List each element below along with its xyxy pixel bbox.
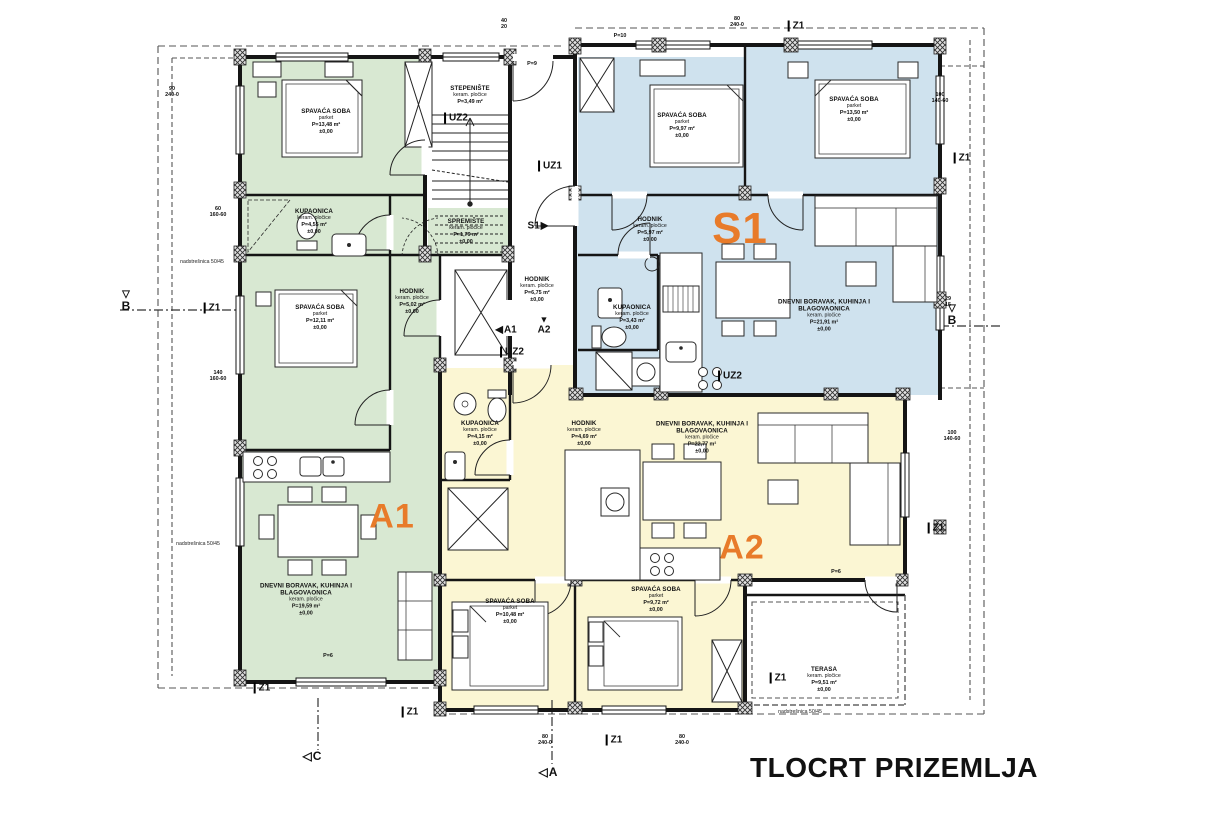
marker-text: Z1: [775, 673, 787, 684]
room-floor: keram. pločice: [450, 93, 490, 99]
plan-marker: Z1: [606, 735, 623, 746]
room-area: P=10,48 m²: [485, 612, 534, 618]
dim-line2: 160-60: [210, 212, 227, 218]
room-area: P=3,49 m²: [450, 99, 490, 105]
dim-line2: 240-0: [730, 22, 744, 28]
plan-marker: ▼ A2: [538, 317, 551, 336]
dimension-tag: 80 240-0: [675, 734, 689, 746]
marker-glyph-icon: ◁: [539, 766, 548, 778]
marker-text: Z1: [209, 303, 221, 314]
unit-badge: S1: [712, 204, 768, 254]
room-name: DNEVNI BORAVAK, KUHINJA I BLAGOVAONICA: [632, 422, 772, 436]
room-level: ±0,00: [631, 607, 680, 613]
marker-text: C: [313, 749, 322, 763]
room-area: P=21,91 m²: [754, 319, 894, 325]
drawing-title: TLOCRT PRIZEMLJA: [750, 752, 1038, 784]
dim-line1: P=6: [831, 569, 841, 575]
overhang-note: nadstrešnica 50/45: [778, 709, 822, 715]
room-area: P=9,97 m²: [657, 126, 706, 132]
room-label: STEPENIŠTE keram. pločice P=3,49 m²: [450, 86, 490, 106]
dim-line1: P=6: [323, 653, 333, 659]
dim-line1: 100: [935, 92, 944, 98]
dim-line1: 80: [734, 16, 740, 22]
marker-glyph-icon: ◁: [303, 750, 312, 762]
room-label: SPAVAĆA SOBA parket P=13,50 m² ±0,00: [829, 97, 878, 123]
floor-plan-canvas: SPAVAĆA SOBA parket P=13,48 m² ±0,00 KUP…: [0, 0, 1211, 832]
room-label: KUPAONICA keram. pločice P=4,55 m² ±0,00: [295, 209, 333, 235]
room-level: ±0,00: [395, 309, 428, 315]
room-label: SPAVAĆA SOBA parket P=10,48 m² ±0,00: [485, 599, 534, 625]
marker-text: S1: [528, 221, 540, 232]
dimension-tag: 90 240-0: [165, 86, 179, 98]
plan-marker: ◁ C: [303, 749, 322, 763]
room-area: P=4,55 m²: [295, 222, 333, 228]
dimension-tag: P=9: [527, 61, 537, 67]
dimension-tag: 140 160-60: [210, 370, 227, 382]
floor-plan-drawing: [0, 0, 1211, 832]
dim-line1: P=9: [527, 61, 537, 67]
room-level: ±0,00: [295, 325, 344, 331]
marker-text: B: [122, 300, 131, 312]
plan-marker: Z1: [954, 153, 971, 164]
room-label: HODNIK keram. pločice P=5,97 m² ±0,00: [633, 217, 666, 243]
dim-line1: 100: [947, 430, 956, 436]
dimension-tag: 80 240-0: [730, 16, 744, 28]
plan-marker: UZ2: [444, 113, 468, 124]
room-label: DNEVNI BORAVAK, KUHINJA I BLAGOVAONICA k…: [754, 300, 894, 333]
room-level: ±0,00: [807, 687, 840, 693]
dim-line1: 140: [213, 370, 222, 376]
plan-marker: ▽ B: [948, 306, 957, 326]
plan-marker: ◁ A: [539, 765, 558, 779]
room-area: P=4,69 m²: [567, 434, 600, 440]
room-name: DNEVNI BORAVAK, KUHINJA I BLAGOVAONICA: [754, 300, 894, 314]
marker-text: Z1: [793, 21, 805, 32]
room-level: ±0,00: [448, 239, 485, 245]
room-floor: keram. pločice: [461, 428, 499, 434]
room-area: P=3,43 m²: [613, 318, 651, 324]
room-area: P=1,79 m²: [448, 232, 485, 238]
room-level: ±0,00: [613, 325, 651, 331]
dimension-tag: 80 240-0: [538, 734, 552, 746]
room-label: KUPAONICA keram. pločice P=4,15 m² ±0,00: [461, 421, 499, 447]
room-floor: keram. pločice: [613, 312, 651, 318]
room-level: ±0,00: [567, 441, 600, 447]
room-level: ±0,00: [485, 619, 534, 625]
marker-text: Z1: [611, 735, 623, 746]
room-level: ±0,00: [520, 297, 553, 303]
room-label: SPAVAĆA SOBA parket P=9,72 m² ±0,00: [631, 587, 680, 613]
room-label: SPAVAĆA SOBA parket P=9,97 m² ±0,00: [657, 113, 706, 139]
marker-glyph-icon: ▶: [541, 221, 549, 231]
plan-marker: Z1: [254, 683, 271, 694]
marker-text: Z1: [407, 707, 419, 718]
dim-line2: 20: [501, 24, 507, 30]
dimension-tag: P=10: [614, 33, 627, 39]
kitchen-a1: [243, 452, 390, 482]
dim-line1: P=10: [614, 33, 627, 39]
dimension-tag: 100 140-60: [932, 92, 949, 104]
marker-text: A: [549, 765, 558, 779]
marker-glyph-icon: ▼: [540, 316, 549, 325]
plan-marker: UZ2: [718, 371, 742, 382]
marker-text: A1: [504, 325, 517, 336]
sofa: [398, 572, 432, 660]
room-label: HODNIK keram. pločice P=6,75 m² ±0,00: [520, 277, 553, 303]
room-floor: keram. pločice: [448, 226, 485, 232]
plan-marker: ◀ A1: [495, 325, 517, 336]
room-label: SPAVAĆA SOBA parket P=13,48 m² ±0,00: [301, 109, 350, 135]
room-label: HODNIK keram. pločice P=5,02 m² ±0,00: [395, 289, 428, 315]
dimension-tag: P=6: [323, 653, 333, 659]
room-floor: keram. pločice: [295, 216, 333, 222]
room-area: P=9,72 m²: [631, 600, 680, 606]
overhang-note: nadstrešnica 50/45: [176, 541, 220, 547]
room-level: ±0,00: [241, 610, 371, 616]
marker-glyph-icon: ◀: [495, 325, 503, 335]
dimension-tag: 100 140-60: [944, 430, 961, 442]
dim-line1: 60: [215, 206, 221, 212]
dim-line2: 160-60: [210, 376, 227, 382]
marker-text: A2: [538, 325, 551, 336]
marker-text: Z1: [259, 683, 271, 694]
bed: [588, 617, 682, 690]
room-area: P=4,15 m²: [461, 434, 499, 440]
room-label: DNEVNI BORAVAK, KUHINJA I BLAGOVAONICA k…: [632, 422, 772, 455]
room-floor: keram. pločice: [633, 224, 666, 230]
dim-line2: 140-60: [932, 98, 949, 104]
room-area: P=19,59 m²: [241, 603, 371, 609]
room-label: DNEVNI BORAVAK, KUHINJA I BLAGOVAONICA k…: [241, 584, 371, 617]
plan-marker: Z1: [204, 303, 221, 314]
room-level: ±0,00: [829, 117, 878, 123]
room-level: ±0,00: [633, 237, 666, 243]
dim-line1: 90: [169, 86, 175, 92]
dim-line2: 240-0: [538, 740, 552, 746]
marker-text: UZ2: [723, 371, 742, 382]
marker-text: UZ2: [505, 347, 524, 358]
room-area: P=13,48 m²: [301, 122, 350, 128]
plan-marker: Z1: [928, 523, 945, 534]
marker-text: Z1: [933, 523, 945, 534]
unit-badge: A2: [719, 529, 764, 568]
dimension-tag: P=6: [831, 569, 841, 575]
room-level: ±0,00: [657, 133, 706, 139]
room-area: P=13,50 m²: [829, 110, 878, 116]
room-floor: keram. pločice: [395, 296, 428, 302]
room-level: ±0,00: [301, 129, 350, 135]
plan-marker: Z1: [770, 673, 787, 684]
room-label: SPAVAĆA SOBA parket P=12,11 m² ±0,00: [295, 305, 344, 331]
marker-text: UZ1: [543, 161, 562, 172]
room-floor: keram. pločice: [807, 674, 840, 680]
room-level: ±0,00: [754, 326, 894, 332]
room-floor: keram. pločice: [567, 428, 600, 434]
plan-marker: Z1: [402, 707, 419, 718]
dimension-tag: 60 160-60: [210, 206, 227, 218]
marker-text: Z1: [959, 153, 971, 164]
room-area: P=5,02 m²: [395, 302, 428, 308]
marker-text: UZ2: [449, 113, 468, 124]
dim-line1: 29: [945, 296, 951, 302]
dim-line2: 240-0: [675, 740, 689, 746]
room-name: DNEVNI BORAVAK, KUHINJA I BLAGOVAONICA: [241, 584, 371, 598]
plan-marker: UZ1: [538, 161, 562, 172]
dimension-tag: 40 20: [501, 18, 507, 30]
plan-marker: ▽ B: [122, 292, 131, 312]
room-area: P=5,97 m²: [633, 230, 666, 236]
dim-line1: 40: [501, 18, 507, 24]
room-area: P=22,77 m²: [632, 441, 772, 447]
room-label: KUPAONICA keram. pločice P=3,43 m² ±0,00: [613, 305, 651, 331]
room-area: P=9,51 m²: [807, 680, 840, 686]
room-label: HODNIK keram. pločice P=4,69 m² ±0,00: [567, 421, 600, 447]
room-area: P=12,11 m²: [295, 318, 344, 324]
plan-marker: UZ2: [500, 347, 524, 358]
room-label: SPREMIŠTE keram. pločice P=1,79 m² ±0,00: [448, 219, 485, 245]
marker-text: B: [948, 314, 957, 326]
room-floor: keram. pločice: [520, 284, 553, 290]
room-level: ±0,00: [295, 229, 333, 235]
dim-line1: 80: [542, 734, 548, 740]
plan-marker: ▶ S1: [528, 221, 549, 232]
room-area: P=6,75 m²: [520, 290, 553, 296]
room-label: TERASA keram. pločice P=9,51 m² ±0,00: [807, 667, 840, 693]
dim-line1: 80: [679, 734, 685, 740]
plan-marker: Z1: [788, 21, 805, 32]
unit-badge: A1: [369, 498, 414, 537]
room-level: ±0,00: [461, 441, 499, 447]
dim-line2: 140-60: [944, 436, 961, 442]
room-level: ±0,00: [632, 448, 772, 454]
overhang-note: nadstrešnica 50/45: [180, 259, 224, 265]
dim-line2: 240-0: [165, 92, 179, 98]
